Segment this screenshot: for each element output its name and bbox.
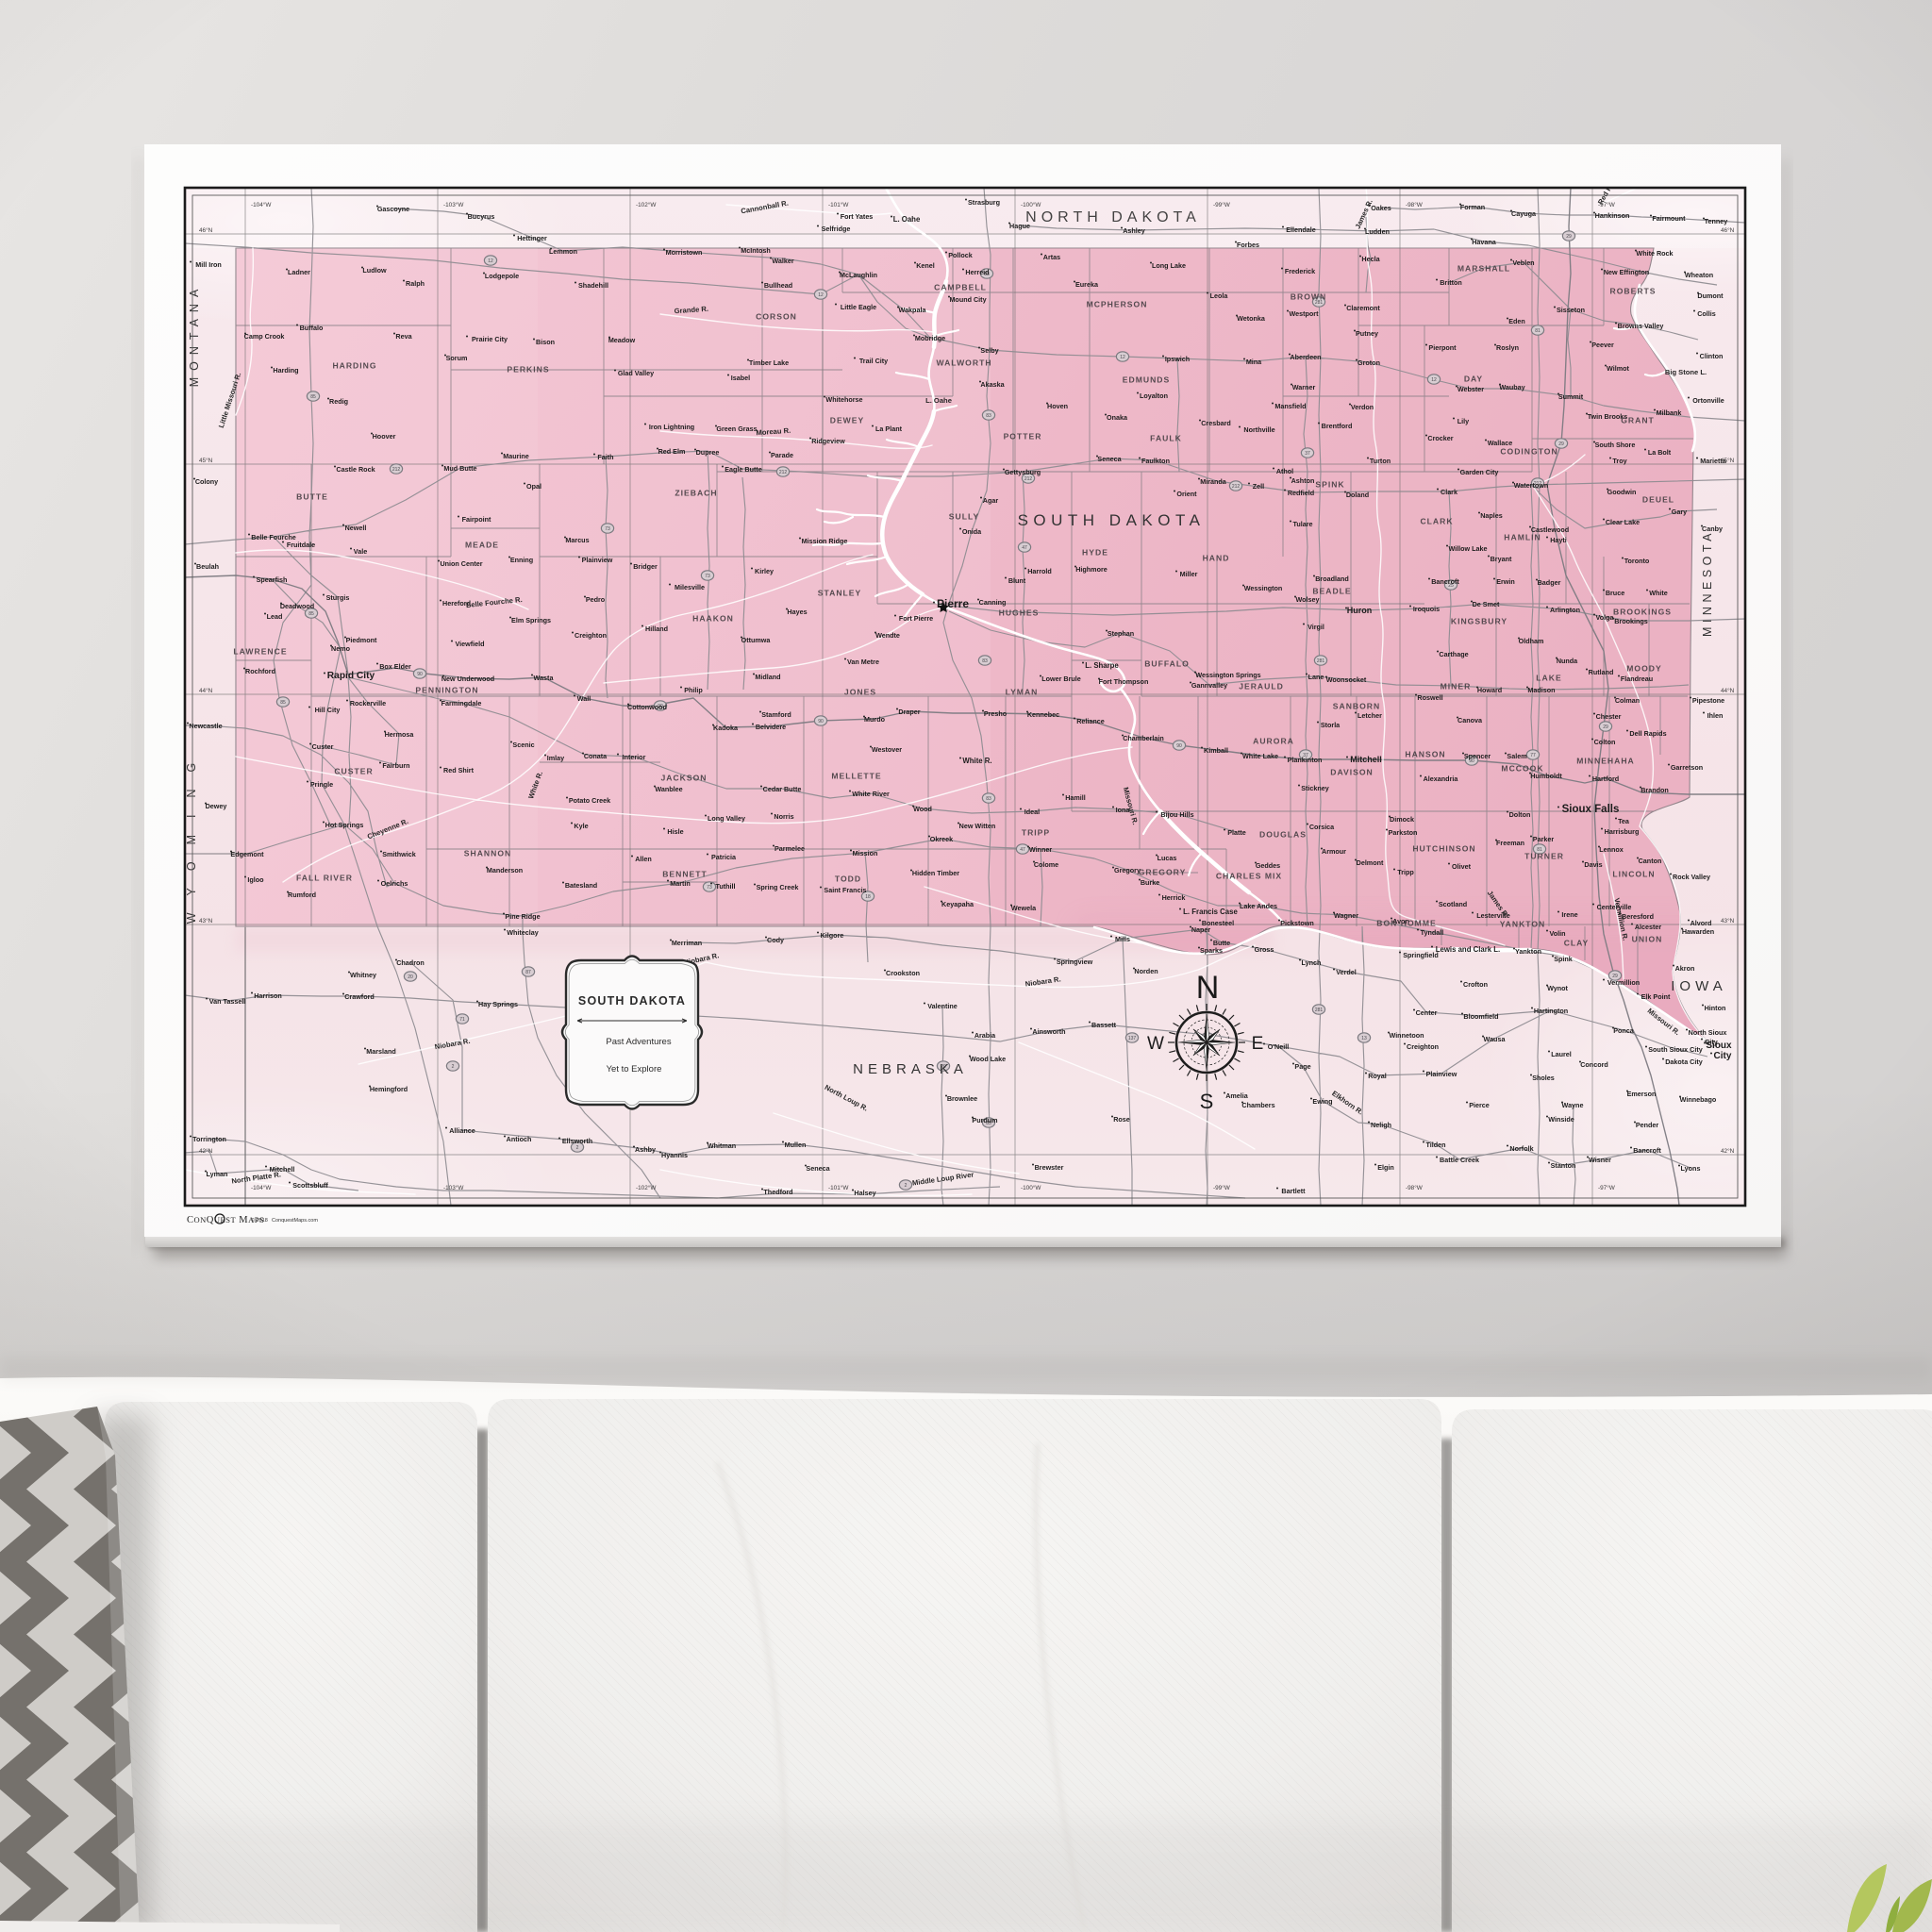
svg-text:Colony: Colony xyxy=(195,477,218,486)
svg-text:Castle Rock: Castle Rock xyxy=(336,465,375,474)
svg-text:43°N: 43°N xyxy=(1721,917,1735,924)
svg-text:Mitchell: Mitchell xyxy=(1350,755,1382,764)
svg-text:Artas: Artas xyxy=(1043,253,1060,261)
svg-text:Hermosa: Hermosa xyxy=(385,730,415,739)
svg-text:Mill Iron: Mill Iron xyxy=(195,260,222,269)
svg-text:TODD: TODD xyxy=(835,874,861,884)
svg-text:TRIPP: TRIPP xyxy=(1022,828,1050,838)
svg-text:Orient: Orient xyxy=(1176,490,1197,498)
svg-text:Cottonwood: Cottonwood xyxy=(627,703,667,711)
svg-text:Scottsbluff: Scottsbluff xyxy=(292,1181,328,1190)
svg-text:SOUTH DAKOTA: SOUTH DAKOTA xyxy=(1018,511,1206,529)
svg-text:Ludlow: Ludlow xyxy=(362,266,387,275)
svg-text:Eureka: Eureka xyxy=(1075,280,1099,289)
svg-text:Wakpala: Wakpala xyxy=(899,306,927,314)
svg-text:Ralph: Ralph xyxy=(406,279,425,288)
svg-text:Torrington: Torrington xyxy=(192,1135,226,1143)
svg-text:SANBORN: SANBORN xyxy=(1333,702,1380,711)
svg-text:Nemo: Nemo xyxy=(331,644,351,653)
svg-text:-100°W: -100°W xyxy=(1021,201,1041,208)
svg-text:Mission Ridge: Mission Ridge xyxy=(802,537,848,545)
svg-text:Ponca: Ponca xyxy=(1613,1026,1635,1035)
svg-text:Kennebec: Kennebec xyxy=(1027,710,1059,719)
svg-text:Iroquois: Iroquois xyxy=(1413,605,1440,613)
svg-text:Wanblee: Wanblee xyxy=(655,785,682,793)
svg-text:Hot Springs: Hot Springs xyxy=(325,821,364,829)
svg-text:Herrick: Herrick xyxy=(1162,893,1186,902)
svg-text:Saint Francis: Saint Francis xyxy=(824,886,866,894)
svg-text:Fairburn: Fairburn xyxy=(382,761,409,770)
svg-text:Woonsocket: Woonsocket xyxy=(1326,675,1367,684)
svg-text:Ihlen: Ihlen xyxy=(1707,711,1724,720)
svg-text:White Lake: White Lake xyxy=(1242,752,1278,760)
svg-text:-104°W: -104°W xyxy=(251,201,272,208)
svg-text:Bruce: Bruce xyxy=(1606,589,1624,597)
svg-text:Murdo: Murdo xyxy=(864,715,886,724)
svg-text:Burke: Burke xyxy=(1141,878,1159,887)
svg-text:Bucyrus: Bucyrus xyxy=(468,212,495,221)
svg-text:Red Elm: Red Elm xyxy=(658,447,686,456)
svg-text:Northville: Northville xyxy=(1243,425,1274,434)
svg-text:Emerson: Emerson xyxy=(1627,1090,1657,1098)
svg-text:Brandon: Brandon xyxy=(1641,786,1669,794)
svg-text:Ideal: Ideal xyxy=(1024,808,1040,816)
svg-text:Brownlee: Brownlee xyxy=(947,1094,977,1103)
svg-text:New Underwood: New Underwood xyxy=(441,675,494,683)
svg-text:Winside: Winside xyxy=(1548,1115,1574,1124)
svg-text:Redfield: Redfield xyxy=(1288,489,1314,497)
svg-text:Parade: Parade xyxy=(771,451,793,459)
svg-text:212: 212 xyxy=(1024,476,1033,482)
svg-text:La Bolt: La Bolt xyxy=(1648,448,1672,457)
svg-text:Gascoyne: Gascoyne xyxy=(377,205,409,213)
svg-text:De Smet: De Smet xyxy=(1473,600,1500,608)
svg-text:Merriman: Merriman xyxy=(672,939,702,947)
svg-text:White R.: White R. xyxy=(962,757,991,765)
svg-text:POTTER: POTTER xyxy=(1004,432,1042,441)
svg-text:47: 47 xyxy=(1020,847,1025,853)
svg-text:WYOMING: WYOMING xyxy=(185,746,198,924)
svg-text:Tea: Tea xyxy=(1618,817,1630,825)
svg-text:Butte: Butte xyxy=(1213,939,1230,947)
svg-text:La Plant: La Plant xyxy=(875,425,903,433)
svg-text:Elgin: Elgin xyxy=(1377,1163,1394,1172)
svg-text:Wetonka: Wetonka xyxy=(1237,314,1266,323)
svg-text:Spring Creek: Spring Creek xyxy=(757,883,799,891)
svg-text:Shadehill: Shadehill xyxy=(578,281,608,290)
svg-text:Cresbard: Cresbard xyxy=(1201,419,1231,427)
svg-text:City: City xyxy=(1714,1051,1732,1061)
svg-text:Spencer: Spencer xyxy=(1464,752,1491,760)
svg-text:Newcastle: Newcastle xyxy=(189,722,222,730)
svg-text:Whitehorse: Whitehorse xyxy=(825,395,862,404)
svg-text:L. Oahe: L. Oahe xyxy=(893,215,921,224)
svg-text:Van Tassell: Van Tassell xyxy=(209,997,246,1006)
svg-text:Winnebago: Winnebago xyxy=(1680,1095,1717,1104)
svg-text:Elm Springs: Elm Springs xyxy=(511,616,551,625)
svg-text:Reliance: Reliance xyxy=(1076,717,1105,725)
svg-text:Ashton: Ashton xyxy=(1291,476,1315,485)
svg-text:Union Center: Union Center xyxy=(440,559,482,568)
svg-text:HARDING: HARDING xyxy=(332,361,376,371)
svg-text:Wasta: Wasta xyxy=(534,674,555,682)
svg-text:45°N: 45°N xyxy=(199,457,213,464)
svg-text:Okreek: Okreek xyxy=(930,835,953,843)
svg-text:White Rock: White Rock xyxy=(1636,249,1673,258)
svg-text:-99°W: -99°W xyxy=(1213,201,1231,208)
svg-text:Elk Point: Elk Point xyxy=(1641,992,1671,1001)
svg-text:83: 83 xyxy=(986,796,991,802)
svg-text:Blunt: Blunt xyxy=(1008,576,1026,585)
svg-text:BROWN: BROWN xyxy=(1291,292,1326,302)
svg-text:Canova: Canova xyxy=(1457,716,1483,724)
svg-text:83: 83 xyxy=(982,658,988,664)
svg-text:Freeman: Freeman xyxy=(1496,839,1524,847)
svg-text:Hilland: Hilland xyxy=(645,625,668,633)
svg-text:Hankinson: Hankinson xyxy=(1595,211,1630,220)
svg-text:Alvord: Alvord xyxy=(1690,919,1712,927)
svg-text:85: 85 xyxy=(280,700,286,706)
svg-text:Wheaton: Wheaton xyxy=(1685,271,1713,279)
svg-text:Toronto: Toronto xyxy=(1624,557,1650,565)
svg-text:Wall: Wall xyxy=(577,694,591,703)
svg-text:85: 85 xyxy=(310,394,316,400)
svg-text:BEADLE: BEADLE xyxy=(1312,587,1351,596)
svg-text:Parkston: Parkston xyxy=(1389,828,1418,837)
svg-text:-103°W: -103°W xyxy=(443,201,464,208)
svg-text:Browns Valley: Browns Valley xyxy=(1618,322,1664,330)
svg-text:Akron: Akron xyxy=(1675,964,1695,973)
svg-text:Garden City: Garden City xyxy=(1460,468,1499,476)
svg-text:Seneca: Seneca xyxy=(806,1164,830,1173)
svg-text:GRANT: GRANT xyxy=(1621,416,1655,425)
svg-text:Verdel: Verdel xyxy=(1336,968,1357,976)
svg-text:Agar: Agar xyxy=(983,496,999,505)
svg-text:Bancroft: Bancroft xyxy=(1431,577,1459,586)
svg-text:Hamill: Hamill xyxy=(1065,793,1086,802)
svg-text:Allen: Allen xyxy=(635,855,652,863)
svg-text:Arlington: Arlington xyxy=(1550,606,1580,614)
svg-text:Brookings: Brookings xyxy=(1614,617,1648,625)
svg-text:MINNESOTA: MINNESOTA xyxy=(1701,529,1714,637)
svg-text:Doland: Doland xyxy=(1346,491,1369,499)
svg-text:46°N: 46°N xyxy=(199,226,213,234)
svg-text:Ashby: Ashby xyxy=(635,1145,656,1154)
svg-text:42°N: 42°N xyxy=(199,1147,213,1155)
svg-text:Turton: Turton xyxy=(1370,457,1391,465)
svg-text:Badger: Badger xyxy=(1538,578,1561,587)
svg-text:Warner: Warner xyxy=(1292,383,1316,391)
svg-text:Viewfield: Viewfield xyxy=(455,640,484,648)
svg-text:42°N: 42°N xyxy=(1721,1147,1735,1155)
svg-text:Hill City: Hill City xyxy=(315,706,341,714)
svg-text:SOUTH DAKOTA: SOUTH DAKOTA xyxy=(578,994,686,1008)
svg-text:-100°W: -100°W xyxy=(1021,1184,1041,1191)
svg-text:Garretson: Garretson xyxy=(1671,763,1703,772)
svg-text:W: W xyxy=(1147,1034,1164,1054)
svg-text:Milbank: Milbank xyxy=(1657,408,1682,417)
svg-text:MINER: MINER xyxy=(1441,682,1472,691)
svg-text:CUSTER: CUSTER xyxy=(334,767,373,776)
svg-text:Canning: Canning xyxy=(979,598,1007,607)
svg-text:37: 37 xyxy=(1305,451,1310,457)
svg-text:Volga: Volga xyxy=(1595,613,1614,622)
svg-text:HUGHES: HUGHES xyxy=(999,608,1040,618)
svg-text:20: 20 xyxy=(408,974,413,980)
svg-text:Dimock: Dimock xyxy=(1390,815,1414,824)
svg-text:Long Lake: Long Lake xyxy=(1152,261,1186,270)
svg-text:Sisseton: Sisseton xyxy=(1557,306,1585,314)
svg-text:Buffalo: Buffalo xyxy=(300,324,324,332)
svg-text:Farmingdale: Farmingdale xyxy=(441,699,482,708)
svg-text:Norden: Norden xyxy=(1134,967,1158,975)
svg-text:Plainview: Plainview xyxy=(1426,1070,1457,1078)
svg-text:Sorum: Sorum xyxy=(446,354,468,362)
svg-text:73: 73 xyxy=(605,526,610,532)
svg-text:Alliance: Alliance xyxy=(449,1126,475,1135)
svg-text:Isabel: Isabel xyxy=(731,374,750,382)
svg-text:Crocker: Crocker xyxy=(1427,434,1453,442)
svg-text:Creighton: Creighton xyxy=(575,631,607,640)
svg-text:85: 85 xyxy=(308,611,314,617)
svg-text:Selfridge: Selfridge xyxy=(822,225,851,233)
svg-text:Newell: Newell xyxy=(345,524,367,532)
svg-text:HUTCHINSON: HUTCHINSON xyxy=(1412,844,1475,854)
svg-text:12: 12 xyxy=(818,292,824,298)
svg-text:Clear Lake: Clear Lake xyxy=(1606,518,1640,526)
svg-text:FAULK: FAULK xyxy=(1150,434,1182,443)
svg-text:Pickstown: Pickstown xyxy=(1280,919,1314,927)
svg-text:Winnetoon: Winnetoon xyxy=(1389,1031,1424,1040)
svg-text:Philip: Philip xyxy=(684,686,703,694)
svg-text:Fort Yates: Fort Yates xyxy=(841,212,874,221)
svg-text:CLARK: CLARK xyxy=(1420,517,1453,526)
svg-text:Goodwin: Goodwin xyxy=(1607,488,1637,496)
svg-text:JACKSON: JACKSON xyxy=(660,774,707,783)
svg-text:Aberdeen: Aberdeen xyxy=(1290,353,1321,361)
svg-text:Westover: Westover xyxy=(872,745,902,754)
svg-text:Frederick: Frederick xyxy=(1285,267,1315,275)
svg-text:LAWRENCE: LAWRENCE xyxy=(233,647,287,657)
svg-text:Kimball: Kimball xyxy=(1204,746,1228,755)
svg-text:Spink: Spink xyxy=(1554,955,1573,963)
svg-text:Hawarden: Hawarden xyxy=(1682,927,1714,936)
svg-text:Plainview: Plainview xyxy=(582,556,613,564)
svg-text:Ortonville: Ortonville xyxy=(1692,396,1724,405)
svg-text:CODINGTON: CODINGTON xyxy=(1500,447,1557,457)
svg-text:Oakes: Oakes xyxy=(1371,204,1391,212)
svg-text:-101°W: -101°W xyxy=(828,1184,849,1191)
svg-text:Camp Crook: Camp Crook xyxy=(244,332,285,341)
svg-text:Westport: Westport xyxy=(1289,309,1319,318)
svg-text:2: 2 xyxy=(905,1183,908,1189)
svg-text:© 2018: © 2018 xyxy=(251,1217,268,1224)
svg-text:Wausa: Wausa xyxy=(1484,1035,1507,1043)
svg-text:Ladner: Ladner xyxy=(288,268,310,276)
svg-text:Gettysburg: Gettysburg xyxy=(1005,468,1041,476)
svg-text:Concord: Concord xyxy=(1580,1060,1608,1069)
svg-text:Neligh: Neligh xyxy=(1371,1121,1391,1129)
svg-text:Valentine: Valentine xyxy=(927,1002,958,1010)
svg-text:281: 281 xyxy=(1317,658,1325,664)
svg-text:Fruitdale: Fruitdale xyxy=(287,541,315,549)
svg-text:43°N: 43°N xyxy=(199,917,213,924)
svg-text:L. Oahe: L. Oahe xyxy=(925,396,952,405)
svg-text:Belvidere: Belvidere xyxy=(756,723,786,731)
svg-text:Ipswich: Ipswich xyxy=(1165,355,1190,363)
svg-text:Gross: Gross xyxy=(1255,945,1274,954)
svg-text:Gannvalley: Gannvalley xyxy=(1191,681,1227,690)
svg-text:Ludden: Ludden xyxy=(1365,227,1390,236)
svg-text:Lyons: Lyons xyxy=(1681,1164,1701,1173)
svg-text:Rutland: Rutland xyxy=(1589,668,1614,676)
svg-text:Strasburg: Strasburg xyxy=(968,198,1000,207)
svg-text:Havana: Havana xyxy=(1472,238,1497,246)
svg-text:73: 73 xyxy=(705,574,710,579)
svg-text:Bryant: Bryant xyxy=(1491,555,1512,563)
svg-text:Watertown: Watertown xyxy=(1514,481,1548,490)
svg-text:E: E xyxy=(1252,1034,1264,1054)
svg-text:Loyalton: Loyalton xyxy=(1140,391,1168,400)
svg-text:-102°W: -102°W xyxy=(636,1184,657,1191)
svg-text:Kirley: Kirley xyxy=(755,567,774,575)
svg-text:ROBERTS: ROBERTS xyxy=(1609,287,1656,296)
svg-text:Collis: Collis xyxy=(1697,309,1716,318)
svg-text:Sholes: Sholes xyxy=(1532,1074,1555,1082)
svg-text:Eden: Eden xyxy=(1508,317,1525,325)
svg-text:Clinton: Clinton xyxy=(1700,352,1724,360)
svg-text:Redig: Redig xyxy=(329,397,348,406)
svg-text:McIntosh: McIntosh xyxy=(741,246,771,255)
svg-text:Pierpont: Pierpont xyxy=(1428,343,1457,352)
svg-text:Summit: Summit xyxy=(1558,392,1584,401)
svg-text:Colman: Colman xyxy=(1615,696,1640,705)
svg-text:Morristown: Morristown xyxy=(666,248,703,257)
svg-text:Broadland: Broadland xyxy=(1315,575,1349,583)
svg-text:Whitney: Whitney xyxy=(350,971,376,979)
svg-text:Thedford: Thedford xyxy=(763,1188,792,1196)
svg-text:HANSON: HANSON xyxy=(1405,750,1445,759)
svg-text:Milesville: Milesville xyxy=(675,583,705,591)
svg-text:Whiteclay: Whiteclay xyxy=(507,928,539,937)
svg-text:Hay Springs: Hay Springs xyxy=(478,1000,518,1008)
svg-text:212: 212 xyxy=(779,470,788,475)
svg-text:Midland: Midland xyxy=(755,673,780,681)
svg-text:Hyannis: Hyannis xyxy=(661,1151,688,1159)
svg-text:Crookston: Crookston xyxy=(886,969,920,977)
svg-text:Tyndall: Tyndall xyxy=(1421,928,1444,937)
svg-text:Chadron: Chadron xyxy=(396,958,425,967)
svg-text:Wessington Springs: Wessington Springs xyxy=(1195,671,1260,679)
svg-text:Norfolk: Norfolk xyxy=(1509,1144,1533,1153)
svg-text:MCCOOK: MCCOOK xyxy=(1501,764,1543,774)
svg-text:Fort Thompson: Fort Thompson xyxy=(1099,677,1149,686)
svg-text:Athol: Athol xyxy=(1276,467,1293,475)
svg-text:Timber Lake: Timber Lake xyxy=(749,358,789,367)
svg-text:Rose: Rose xyxy=(1113,1115,1130,1124)
svg-text:Custer: Custer xyxy=(312,742,334,751)
svg-text:LAKE: LAKE xyxy=(1536,674,1561,683)
svg-text:Zell: Zell xyxy=(1253,482,1264,491)
svg-text:Whitman: Whitman xyxy=(708,1141,736,1150)
svg-text:Oldham: Oldham xyxy=(1519,637,1544,645)
svg-text:Canton: Canton xyxy=(1639,857,1662,865)
svg-text:MINNEHAHA: MINNEHAHA xyxy=(1576,757,1635,766)
svg-text:Groton: Groton xyxy=(1357,358,1380,367)
svg-text:DOUGLAS: DOUGLAS xyxy=(1259,830,1307,840)
svg-text:Beresford: Beresford xyxy=(1622,912,1654,921)
svg-text:Mina: Mina xyxy=(1246,358,1262,366)
svg-text:DAVISON: DAVISON xyxy=(1330,768,1374,777)
svg-text:Wessington: Wessington xyxy=(1244,584,1283,592)
svg-text:45°N: 45°N xyxy=(1721,457,1735,464)
svg-text:South Sioux City: South Sioux City xyxy=(1648,1045,1703,1054)
svg-text:Prairie City: Prairie City xyxy=(472,335,508,343)
svg-text:KINGSBURY: KINGSBURY xyxy=(1451,617,1507,626)
svg-text:Fort Pierre: Fort Pierre xyxy=(899,614,933,623)
svg-text:Rapid City: Rapid City xyxy=(327,671,375,681)
svg-text:Chamberlain: Chamberlain xyxy=(1123,734,1164,742)
svg-text:Verdon: Verdon xyxy=(1351,403,1374,411)
svg-text:Hartington: Hartington xyxy=(1534,1007,1568,1015)
svg-text:71: 71 xyxy=(459,1017,465,1023)
svg-text:SPINK: SPINK xyxy=(1315,480,1344,490)
svg-text:Huron: Huron xyxy=(1347,606,1373,615)
svg-text:Interior: Interior xyxy=(623,753,646,761)
svg-text:29: 29 xyxy=(1566,234,1572,240)
svg-text:ZIEBACH: ZIEBACH xyxy=(675,489,717,498)
svg-text:Piedmont: Piedmont xyxy=(346,636,377,644)
svg-text:Spearfish: Spearfish xyxy=(257,575,288,584)
svg-text:Ridgeview: Ridgeview xyxy=(811,437,845,445)
svg-text:Mansfield: Mansfield xyxy=(1274,402,1306,410)
svg-text:Bartlett: Bartlett xyxy=(1281,1187,1306,1195)
svg-text:Mullen: Mullen xyxy=(785,1141,807,1149)
svg-text:47: 47 xyxy=(1022,545,1027,551)
svg-text:281: 281 xyxy=(1315,1008,1324,1013)
svg-text:29: 29 xyxy=(1558,441,1564,447)
svg-text:Ottumwa: Ottumwa xyxy=(741,636,772,644)
svg-text:BON HOMME: BON HOMME xyxy=(1376,919,1436,928)
svg-text:Marcus: Marcus xyxy=(565,536,589,544)
svg-text:Kyle: Kyle xyxy=(574,822,588,830)
svg-text:Wayne: Wayne xyxy=(1562,1101,1584,1109)
svg-text:Dupree: Dupree xyxy=(696,448,720,457)
svg-text:Lemmon: Lemmon xyxy=(549,247,577,256)
svg-text:Stephan: Stephan xyxy=(1108,629,1134,638)
svg-text:Naper: Naper xyxy=(1191,925,1211,934)
svg-text:Halsey: Halsey xyxy=(854,1189,875,1197)
svg-text:Volin: Volin xyxy=(1549,929,1565,938)
svg-text:Manderson: Manderson xyxy=(487,866,523,874)
svg-text:Virgil: Virgil xyxy=(1307,623,1324,631)
svg-text:Bloomfield: Bloomfield xyxy=(1463,1012,1498,1021)
svg-text:MELLETTE: MELLETTE xyxy=(831,772,881,781)
svg-text:Geddes: Geddes xyxy=(1256,861,1280,870)
svg-text:Hemingford: Hemingford xyxy=(370,1085,408,1093)
svg-text:Stickney: Stickney xyxy=(1301,784,1329,792)
svg-text:44°N: 44°N xyxy=(199,687,213,694)
svg-text:Yet to Explore: Yet to Explore xyxy=(607,1064,662,1074)
svg-text:Stanton: Stanton xyxy=(1551,1161,1576,1170)
svg-text:Potato Creek: Potato Creek xyxy=(569,796,610,805)
svg-text:Wood: Wood xyxy=(913,805,932,813)
svg-text:Patricia: Patricia xyxy=(711,853,737,861)
svg-text:PERKINS: PERKINS xyxy=(507,365,549,375)
svg-text:Howard: Howard xyxy=(1477,686,1502,694)
svg-text:Eagle Butte: Eagle Butte xyxy=(724,465,762,474)
svg-text:Hartford: Hartford xyxy=(1592,774,1619,783)
